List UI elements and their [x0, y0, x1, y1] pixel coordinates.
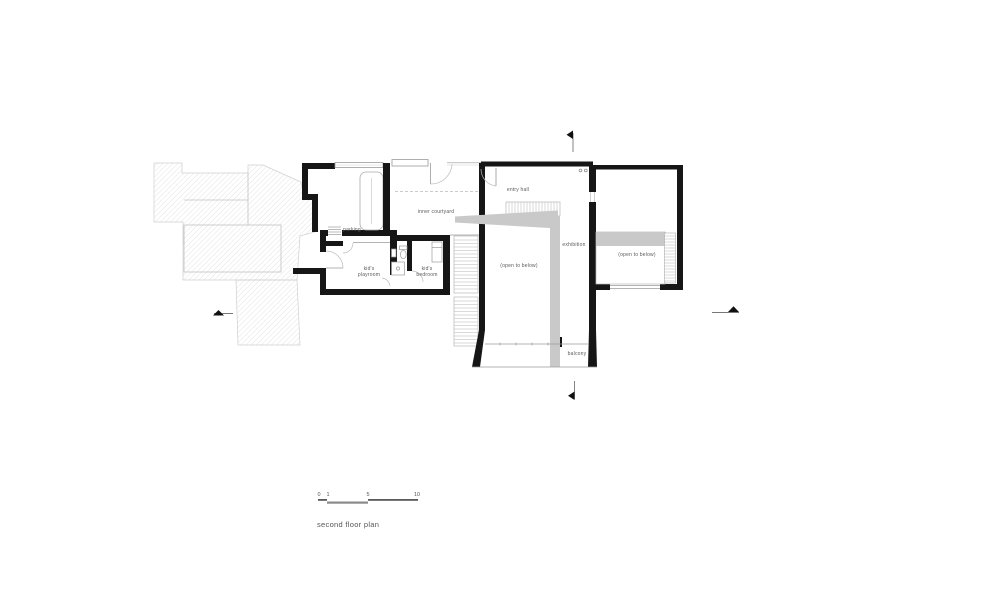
- drawing-title: second floor plan: [317, 520, 379, 529]
- scale-tick-1: 1: [326, 492, 329, 498]
- parking-window: [335, 163, 383, 168]
- hatched-terrain: [154, 163, 318, 345]
- wardrobe: [432, 242, 442, 262]
- floor-plan-drawing: [0, 0, 1000, 606]
- main-staircase: [450, 235, 479, 346]
- label-exhibition: exhibition: [562, 242, 585, 248]
- label-open-to-below-main: (open to below): [500, 263, 537, 269]
- scale-tick-5: 5: [366, 492, 369, 498]
- gallery-stair-strip: [665, 233, 676, 283]
- section-marker-bottom-icon: [568, 381, 575, 400]
- label-entry-hall: entry hall: [507, 187, 529, 193]
- label-parking: parking: [343, 227, 361, 233]
- door-pivot-dots: [579, 169, 587, 172]
- section-marker-top-icon: [567, 131, 574, 153]
- section-marker-left-icon: [213, 310, 233, 316]
- divider-window: [591, 192, 595, 202]
- scale-tick-10: 10: [414, 492, 420, 498]
- gallery-window: [610, 286, 660, 289]
- label-inner-courtyard: inner courtyard: [418, 209, 454, 215]
- courtyard-window: [392, 160, 428, 167]
- kids-block-walls: [293, 230, 450, 295]
- scale-bar: [318, 499, 418, 504]
- label-open-to-below-gallery: (open to below): [618, 252, 655, 258]
- label-kids-playroom: kid's playroom: [354, 266, 384, 279]
- section-marker-right-icon: [712, 306, 739, 312]
- label-balcony: balcony: [568, 351, 587, 357]
- car-outline: [360, 172, 383, 230]
- label-kids-bedroom: kid's bedroom: [412, 266, 442, 279]
- courtyard-door: [431, 163, 482, 184]
- scale-tick-0: 0: [317, 492, 320, 498]
- courtyard-walls: [383, 163, 390, 236]
- small-steps: [328, 227, 341, 235]
- floor-plan-canvas: entry hall inner courtyard parking kid's…: [0, 0, 1000, 606]
